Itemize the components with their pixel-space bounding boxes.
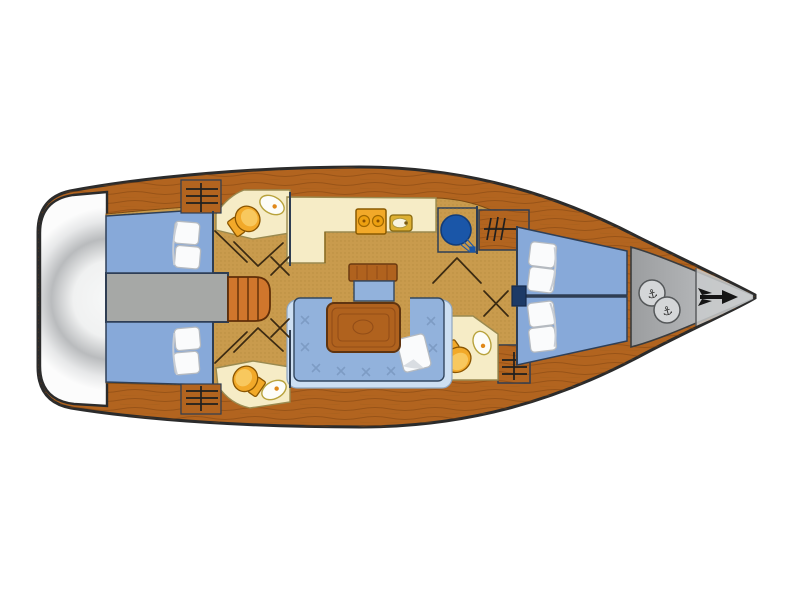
nav-station: Navigation station — [438, 208, 477, 252]
aft-cabin-bottom: Aft double cabin (starboard) — [106, 322, 213, 385]
nav-seat-icon — [441, 215, 471, 245]
yacht-layout-page: Top-view interior layout plan of a saili… — [0, 0, 800, 600]
stern-swim-platform: Stern swim platform — [40, 192, 107, 406]
berth-shelf — [512, 286, 526, 306]
yacht-layout-diagram: Top-view interior layout plan of a saili… — [0, 0, 800, 600]
wardrobe-aft-bottom — [181, 384, 221, 414]
corridor: Cockpit corridor with companionway steps — [106, 273, 270, 322]
wardrobe-aft-top — [181, 180, 221, 213]
cockpit-corridor — [106, 273, 228, 322]
aft-cabin-top: Aft double cabin (port) — [106, 209, 213, 273]
companionway-steps — [228, 277, 270, 321]
forward-cabin: Forward V-berth cabin — [512, 227, 627, 365]
salon-bench — [349, 264, 397, 301]
galley-sink-icon — [390, 215, 412, 231]
salon-table — [327, 303, 400, 352]
stove-icon — [356, 209, 386, 234]
